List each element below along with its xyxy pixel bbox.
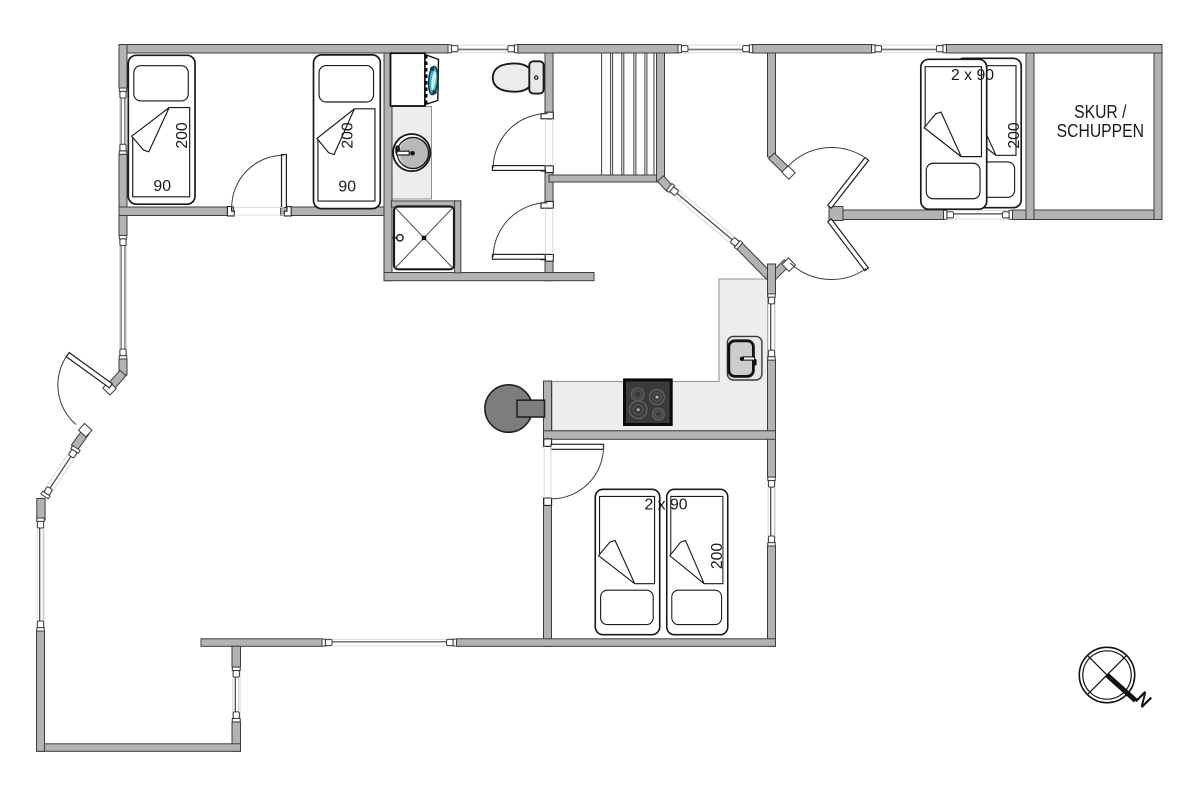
svg-text:90: 90: [338, 179, 356, 196]
svg-text:200: 200: [174, 122, 191, 149]
svg-text:SCHUPPEN: SCHUPPEN: [1057, 120, 1144, 142]
svg-text:SKUR /: SKUR /: [1074, 101, 1127, 123]
svg-text:200: 200: [709, 543, 726, 570]
svg-text:2 x 90: 2 x 90: [951, 67, 994, 84]
svg-text:200: 200: [339, 122, 356, 149]
svg-text:2 x 90: 2 x 90: [644, 497, 687, 514]
svg-text:200: 200: [1006, 122, 1023, 149]
svg-text:90: 90: [153, 178, 171, 195]
